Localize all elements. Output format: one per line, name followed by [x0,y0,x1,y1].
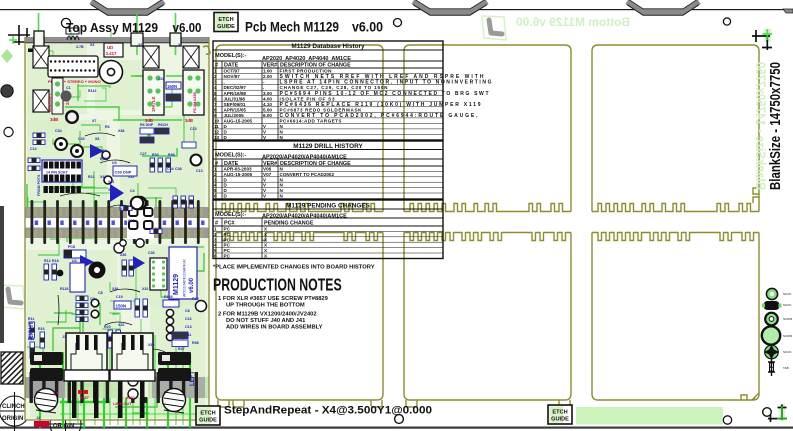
svg-text:SOCK: SOCK [783,303,792,307]
svg-text:JUL/01/98: JUL/01/98 [224,96,246,101]
svg-text:4: 4 [214,183,217,188]
svg-text:X38: X38 [112,287,118,291]
svg-text:MODEL(S):-: MODEL(S):- [215,153,247,159]
svg-text:C8: C8 [185,309,190,313]
svg-text:13: 13 [214,135,220,140]
svg-text:AP2020/AP4020/AP4040/AM1CE: AP2020/AP4020/AP4040/AM1CE [262,214,347,220]
svg-text:C11: C11 [185,333,191,337]
svg-text:3: 3 [214,80,217,85]
svg-text:X12: X12 [108,188,114,192]
svg-text:M1129 PENDING CHANGES: M1129 PENDING CHANGES [286,202,371,209]
svg-text:2: 2 [214,74,217,79]
svg-text:C4: C4 [130,189,135,193]
svg-text:R63: R63 [192,297,199,301]
svg-text:X4: X4 [90,43,94,47]
svg-text:C1: C1 [66,86,71,90]
svg-text:APR/16/98: APR/16/98 [224,91,247,96]
svg-text:X16: X16 [118,323,124,327]
svg-text:J1: J1 [62,335,66,339]
svg-text:X40: X40 [100,149,106,153]
svg-text:X36: X36 [120,253,126,257]
svg-text:UD: UD [107,45,113,50]
svg-text:ADD WIRES IN BOARD ASSEMBLY: ADD WIRES IN BOARD ASSEMBLY [226,325,323,331]
svg-text:1.00: 1.00 [263,69,272,74]
svg-text:11: 11 [214,124,219,129]
svg-text:GUIDE: GUIDE [199,418,217,424]
svg-text:4.00: 4.00 [263,96,272,101]
svg-text:SOCK: SOCK [783,292,792,296]
svg-text:1: 1 [214,69,217,74]
svg-text:LINE-OUT: LINE-OUT [113,401,132,406]
svg-text:X1: X1 [178,43,182,47]
svg-text:3dB: 3dB [50,117,58,122]
svg-text:7: 7 [214,102,217,107]
svg-text:R21: R21 [88,175,95,179]
svg-text:C28: C28 [158,77,165,81]
svg-text:4: 4 [214,243,217,248]
svg-text:M1129 DRILL HISTORY: M1129 DRILL HISTORY [293,143,363,150]
svg-text:x x: x x [53,390,59,395]
svg-text:Pcb Mech M1129: Pcb Mech M1129 [245,20,339,35]
svg-text:R111: R111 [100,157,108,161]
svg-text:R112: R112 [88,89,96,93]
svg-text:ORIGIN: ORIGIN [2,416,23,422]
svg-text:C13: C13 [196,169,203,173]
svg-text:C17: C17 [128,219,135,223]
svg-text:14 PIN SCKT: 14 PIN SCKT [46,171,69,175]
svg-text:M1129 Database History: M1129 Database History [291,43,365,50]
svg-text:v6.00: v6.00 [189,277,195,293]
svg-text:X33: X33 [148,343,154,347]
svg-text:C30 DNP: C30 DNP [115,170,132,175]
svg-text:DESCRIPTION OF CHANGE: DESCRIPTION OF CHANGE [280,161,351,167]
svg-text:JUL/2005: JUL/2005 [224,113,245,118]
svg-text:R14: R14 [44,259,51,263]
svg-text:APR/15/05: APR/15/05 [224,107,247,112]
svg-text:12: 12 [214,130,220,135]
svg-text:R98: R98 [192,341,199,345]
svg-text:R118: R118 [60,287,68,291]
svg-text:3457: 3457 [126,395,136,400]
svg-text:v6.00: v6.00 [173,20,202,35]
svg-text:R6CH: R6CH [158,123,168,127]
svg-text:2 FOR M1129B VX1200/2400/JV240: 2 FOR M1129B VX1200/2400/JV2402 [218,312,317,318]
svg-text:SOCK: SOCK [783,350,792,354]
svg-text:NORM: NORM [783,334,793,338]
svg-text:AP2020 AP4020 AP4040 AM1CE: AP2020 AP4020 AP4040 AM1CE [262,56,351,62]
svg-text:C38: C38 [175,167,182,171]
svg-text:4: 4 [214,85,217,90]
svg-text:5.00: 5.00 [263,107,272,112]
svg-text:ISOLATE PIN OF S3: ISOLATE PIN OF S3 [280,96,335,101]
svg-text:8: 8 [214,107,217,112]
svg-text:C34: C34 [167,167,174,171]
svg-text:C19: C19 [116,295,123,299]
svg-text:NOV/97: NOV/97 [224,74,241,79]
svg-text:PC: PC [224,227,231,232]
svg-text:X13: X13 [120,207,126,211]
svg-text:PC: PC [224,254,231,259]
svg-text:C34: C34 [55,129,62,133]
svg-text:R20: R20 [104,325,111,329]
svg-text:3457: 3457 [80,395,90,400]
svg-text:C13: C13 [190,127,197,131]
svg-text:FROM POTS: FROM POTS [37,174,41,196]
svg-text:*PLACE IMPLEMENTED CHANGES INT: *PLACE IMPLEMENTED CHANGES INTO BOARD HI… [213,265,375,271]
svg-text:1: 1 [214,227,217,232]
svg-text:MODEL(S):-: MODEL(S):- [215,212,247,218]
svg-text:R98: R98 [168,153,175,157]
svg-text:R31: R31 [28,337,35,341]
svg-text:J1: J1 [108,335,112,339]
svg-text:PENDING CHANGE: PENDING CHANGE [264,221,314,227]
svg-text:6.00: 6.00 [263,113,272,118]
svg-text:X32: X32 [128,175,134,179]
svg-text:TP3: TP3 [64,255,71,259]
svg-text:R6: R6 [105,125,110,129]
svg-text:X42: X42 [100,175,106,179]
svg-text:v6.00: v6.00 [352,20,383,35]
svg-text:PC: PC [224,237,231,242]
svg-text:10: 10 [214,119,220,124]
svg-text:CONVERT TO PCAD2002: CONVERT TO PCAD2002 [280,172,335,177]
svg-text:TAB: TAB [783,366,789,370]
svg-text:ETCH: ETCH [218,17,233,23]
svg-text:C14: C14 [30,147,37,151]
svg-text:3: 3 [214,237,217,242]
svg-text:U4: U4 [72,259,77,263]
svg-text:PC: PC [224,232,231,237]
svg-text:C8: C8 [98,291,103,295]
svg-text:CHANGE C27, C29, C28, C30 TO 1: CHANGE C27, C29, C28, C30 TO 150N [280,85,389,90]
svg-text:BlankSize - 14750x7750: BlankSize - 14750x7750 [767,62,784,190]
svg-text:OCT/97: OCT/97 [224,69,241,74]
svg-text:3.417: 3.417 [106,51,118,56]
svg-text:2: 2 [214,232,217,237]
svg-text:R30: R30 [152,153,159,157]
svg-text:150N: 150N [116,304,127,309]
svg-text:C30: C30 [78,137,85,141]
svg-text:NORM: NORM [783,317,793,321]
svg-text:1: 1 [214,167,217,172]
svg-text:UP THROUGH THE BOTTOM: UP THROUGH THE BOTTOM [226,303,305,309]
svg-text:PRODUCTION NOTES: PRODUCTION NOTES [213,275,342,295]
svg-text:Top Assy M1129: Top Assy M1129 [66,20,158,35]
svg-text:L4: L4 [86,259,90,263]
svg-text:.: . [263,85,264,90]
svg-text:SEP/09/01: SEP/09/01 [224,102,246,107]
svg-text:6: 6 [214,254,217,259]
svg-text:APR-03-2003: APR-03-2003 [224,167,253,172]
svg-text:3dB: 3dB [185,118,193,123]
svg-text:AP2020/AP4020/AP4040/AM1CE: AP2020/AP4020/AP4040/AM1CE [262,154,347,160]
svg-text:StepAndRepeat - X4@3.500Y1@0.0: StepAndRepeat - X4@3.500Y1@0.000 [224,405,432,417]
svg-text:X3: X3 [138,43,142,47]
svg-text:R128: R128 [164,295,173,299]
svg-text:GUIDE: GUIDE [551,417,569,423]
svg-text:ETCH: ETCH [552,410,567,416]
svg-text:M1129: M1129 [173,274,180,295]
svg-text:R6 DNP: R6 DNP [140,123,154,127]
svg-text:DEC/02/97: DEC/02/97 [224,85,247,90]
svg-text:C27: C27 [140,152,147,156]
svg-text:5: 5 [214,91,217,96]
svg-text:GND-LIFT: GND-LIFT [47,93,52,112]
svg-text:3.00: 3.00 [263,91,272,96]
svg-text:.: . [224,80,225,85]
svg-text:2.00: 2.00 [263,74,272,79]
svg-text:AP2020/AP4020/AP4040: AP2020/AP4020/AP4040 [183,259,187,297]
svg-text:6: 6 [214,96,217,101]
svg-text:FIRST PRODUCTION: FIRST PRODUCTION [280,69,333,74]
svg-text:PC#6873 REDO SOLDERMASK: PC#6873 REDO SOLDERMASK [280,107,363,112]
svg-text:1FA7LK: 1FA7LK [151,96,156,112]
svg-text:5: 5 [214,248,217,253]
svg-text:U3: U3 [112,161,117,165]
svg-text:AUG-15-2005: AUG-15-2005 [224,119,253,124]
svg-text:3: 3 [214,177,217,182]
svg-text:PC: PC [224,243,231,248]
svg-text:GUIDE: GUIDE [217,24,235,30]
svg-text:ETCH: ETCH [200,411,215,417]
svg-text:5: 5 [214,188,217,193]
svg-text:DO NOT STUFF J40 AND J41: DO NOT STUFF J40 AND J41 [226,318,306,324]
svg-text:CLINCH: CLINCH [2,404,25,410]
svg-text:X38: X38 [118,129,124,133]
svg-text:2: 2 [214,172,217,177]
svg-text:C36: C36 [148,251,155,255]
svg-text:4.10: 4.10 [263,102,272,107]
svg-text:150N: 150N [167,84,177,89]
svg-text:PC#6914:ADD TARGETS: PC#6914:ADD TARGETS [280,119,342,124]
svg-text:AUG-15-2005: AUG-15-2005 [224,172,253,177]
svg-text:X11: X11 [108,180,114,184]
svg-text:C9: C9 [90,297,95,301]
svg-text:9: 9 [214,113,217,118]
svg-text:R16: R16 [38,327,45,331]
svg-text:R18: R18 [52,259,59,263]
svg-text:MODEL(S):-: MODEL(S):- [215,53,247,59]
svg-text:X8: X8 [95,137,99,141]
svg-text:X32: X32 [142,287,148,291]
svg-text:PC: PC [224,248,231,253]
svg-text:X7: X7 [92,119,96,123]
svg-text:C13: C13 [185,325,192,329]
svg-text:F6.3MA250: F6.3MA250 [192,91,197,113]
svg-text:V07: V07 [263,172,272,177]
svg-text:R11: R11 [28,317,34,321]
svg-text:R27: R27 [178,347,185,351]
svg-text:C16: C16 [185,317,192,321]
svg-text:6: 6 [214,194,217,199]
svg-text:1 FOR XLR #3657 USE SCREW PT#8: 1 FOR XLR #3657 USE SCREW PT#8829 [218,296,329,302]
svg-text:V06: V06 [263,167,272,172]
svg-text:Bottom M1129 v6.00: Bottom M1129 v6.00 [516,15,630,29]
svg-text:3.7B: 3.7B [76,45,84,49]
svg-text:PC8: PC8 [68,245,75,249]
